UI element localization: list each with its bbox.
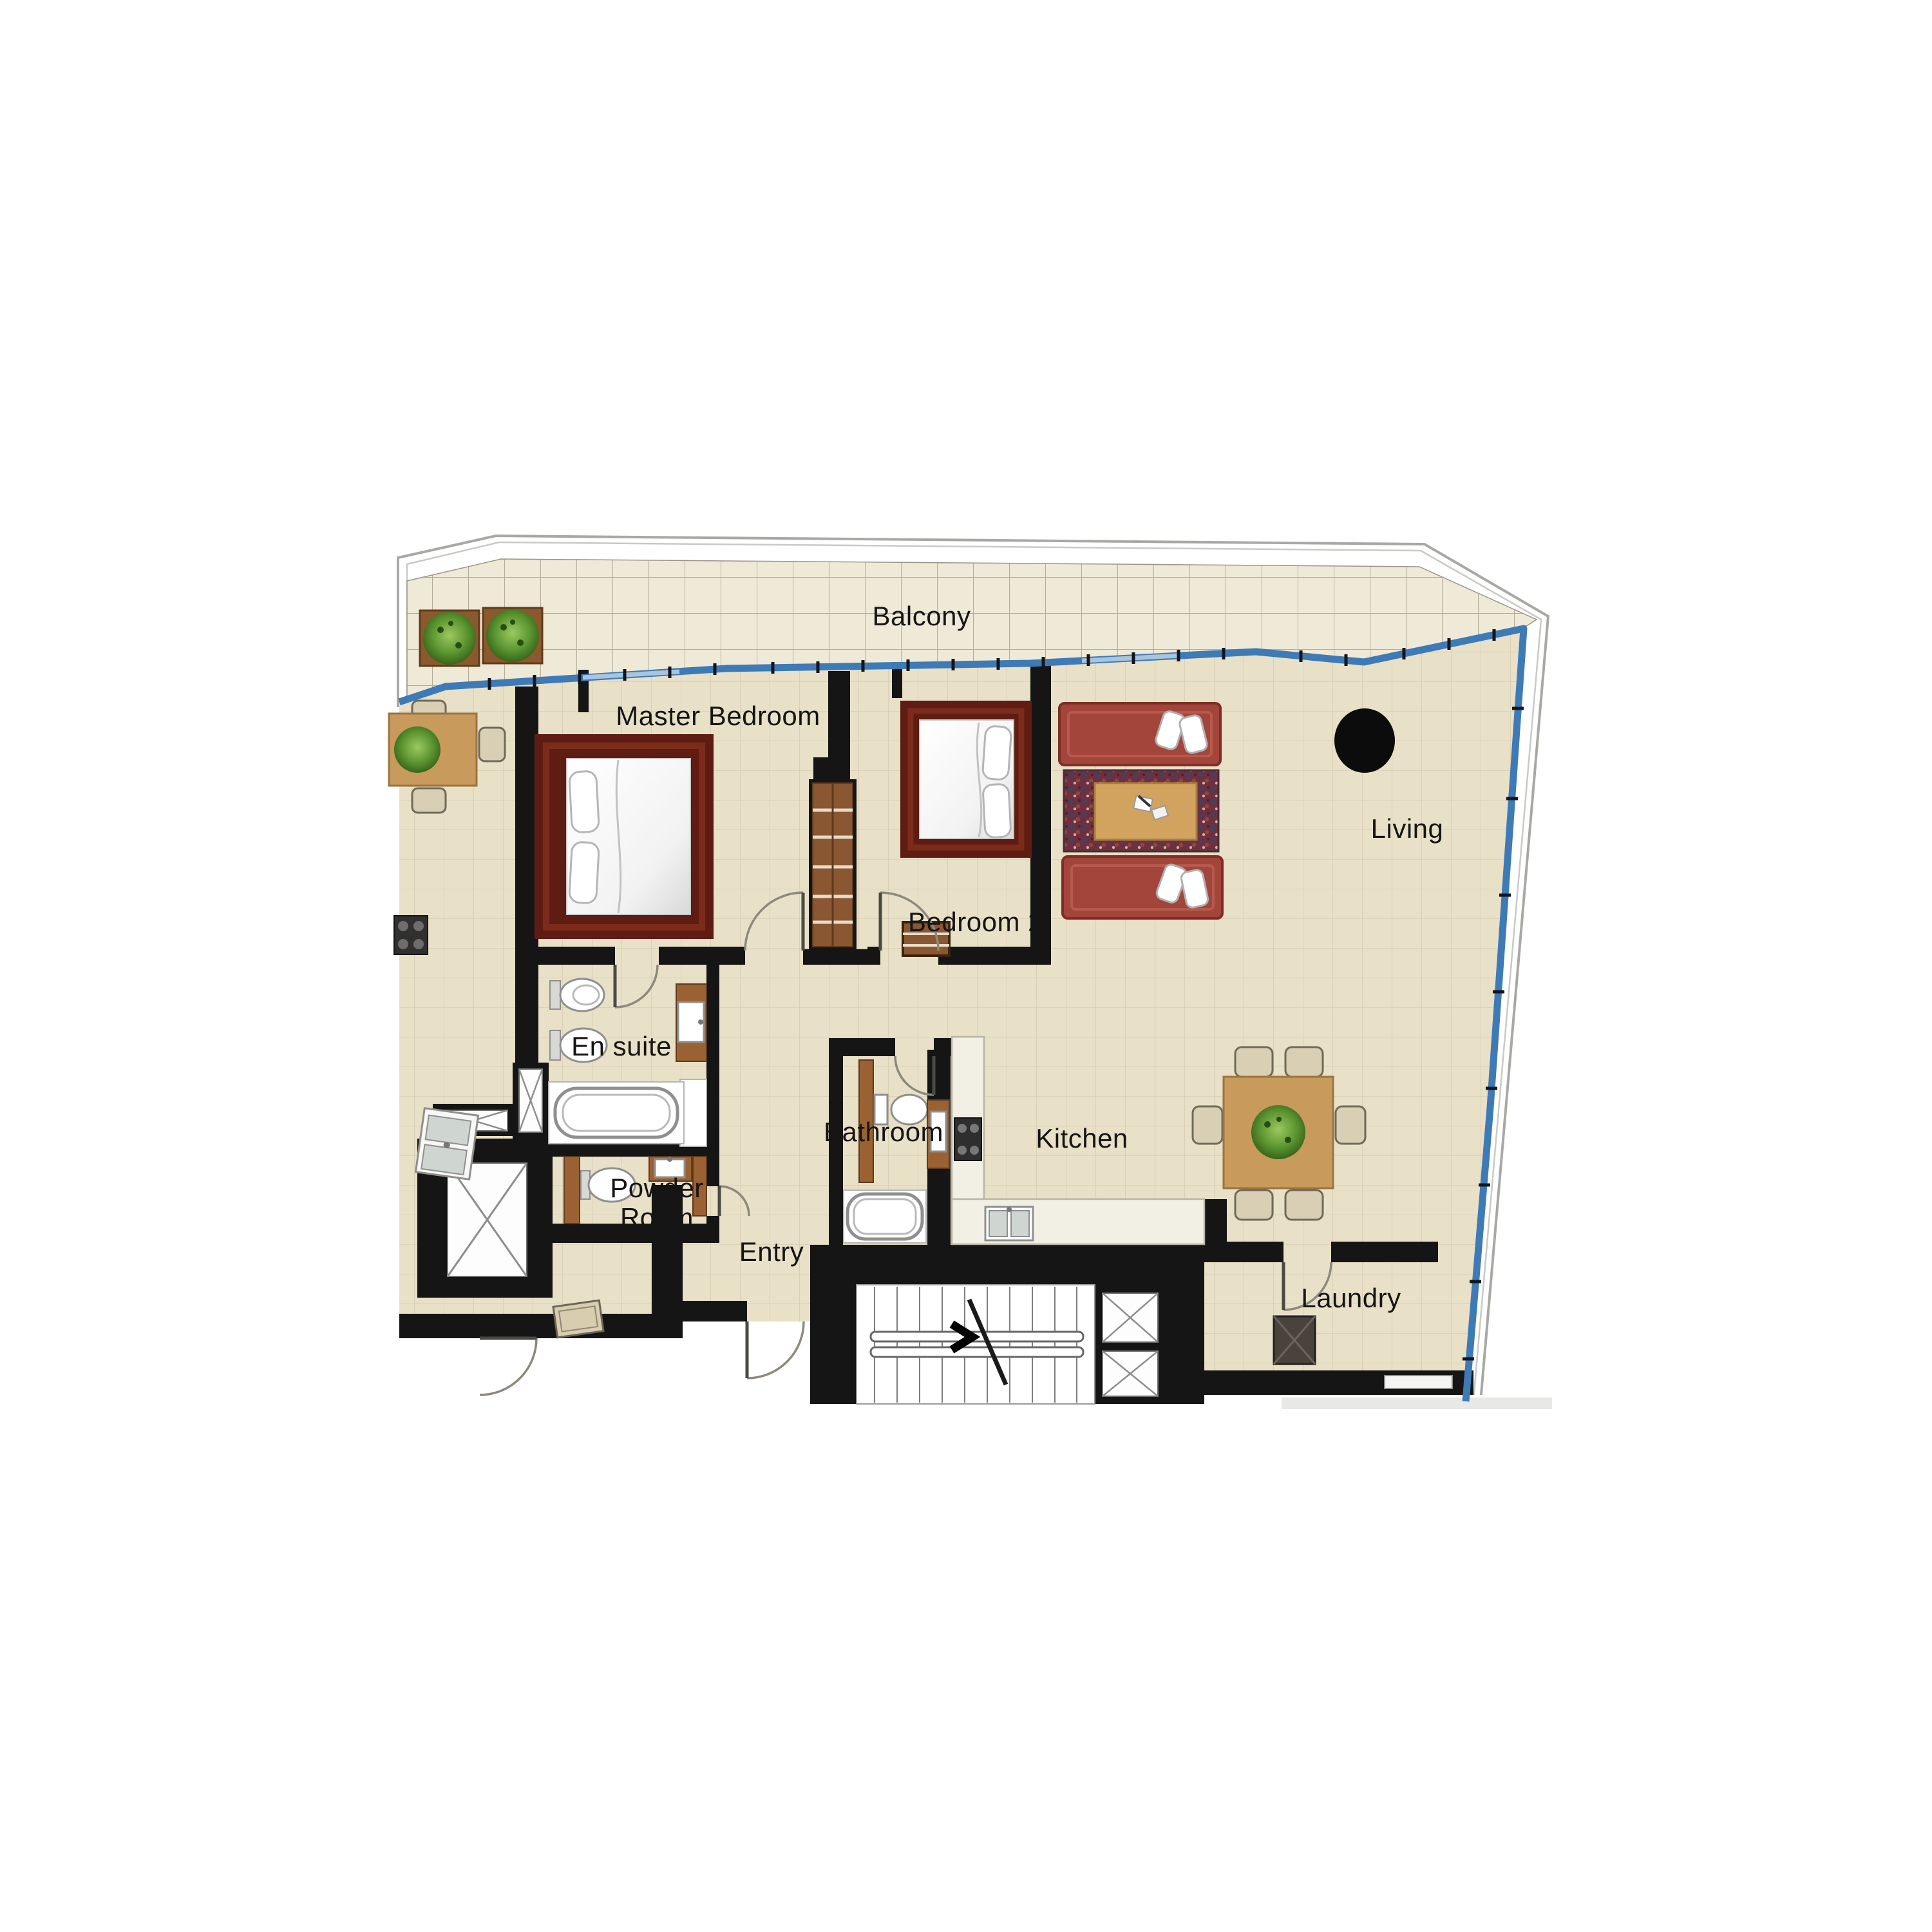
powder-room-line1: Powder <box>610 1173 703 1203</box>
cooktop-icon <box>954 1118 981 1160</box>
elevator <box>448 1163 527 1276</box>
floor-plan-canvas: Balcony Master Bedroom Bedroom 2 Living … <box>0 0 1932 1932</box>
wardrobe-icon <box>809 779 857 951</box>
powder-room-line2: Room <box>620 1202 694 1233</box>
console-table-icon <box>553 1300 603 1338</box>
bedroom2-bed <box>900 701 1032 858</box>
vanity-basin-icon <box>676 984 706 1061</box>
sofa-bottom <box>1063 857 1222 918</box>
master-bed <box>535 734 714 939</box>
wood-panel <box>564 1157 580 1224</box>
room-label-entry: Entry <box>739 1237 804 1267</box>
room-label-master-bedroom: Master Bedroom <box>616 701 820 731</box>
stairs <box>857 1285 1095 1404</box>
cooktop-icon <box>394 916 428 954</box>
floor-plan-drawing <box>0 0 1932 1932</box>
plant-icon <box>394 726 440 773</box>
room-label-laundry: Laundry <box>1301 1283 1401 1313</box>
room-label-living: Living <box>1371 814 1444 844</box>
room-label-bathroom: Bathroom <box>824 1117 943 1147</box>
double-sink-icon <box>985 1207 1033 1240</box>
plant-icon <box>486 609 539 662</box>
double-sink-icon <box>415 1108 478 1180</box>
sofa-top <box>1059 703 1220 765</box>
room-label-powder-room: Powder Room <box>610 1173 703 1233</box>
washer-icon <box>1274 1316 1315 1364</box>
room-label-en-suite: En suite <box>571 1032 672 1061</box>
room-label-balcony: Balcony <box>873 601 971 631</box>
bidet-icon <box>550 979 604 1011</box>
room-label-kitchen: Kitchen <box>1036 1124 1128 1153</box>
bathtub-icon <box>549 1079 706 1146</box>
structural-column-icon <box>1334 708 1395 773</box>
room-label-bedroom-2: Bedroom 2 <box>908 907 1043 937</box>
plant-icon <box>423 612 476 665</box>
bathtub-icon <box>844 1190 926 1243</box>
plant-icon <box>1251 1105 1305 1159</box>
coffee-table-icon <box>1095 783 1197 840</box>
window-sill <box>1385 1376 1452 1388</box>
